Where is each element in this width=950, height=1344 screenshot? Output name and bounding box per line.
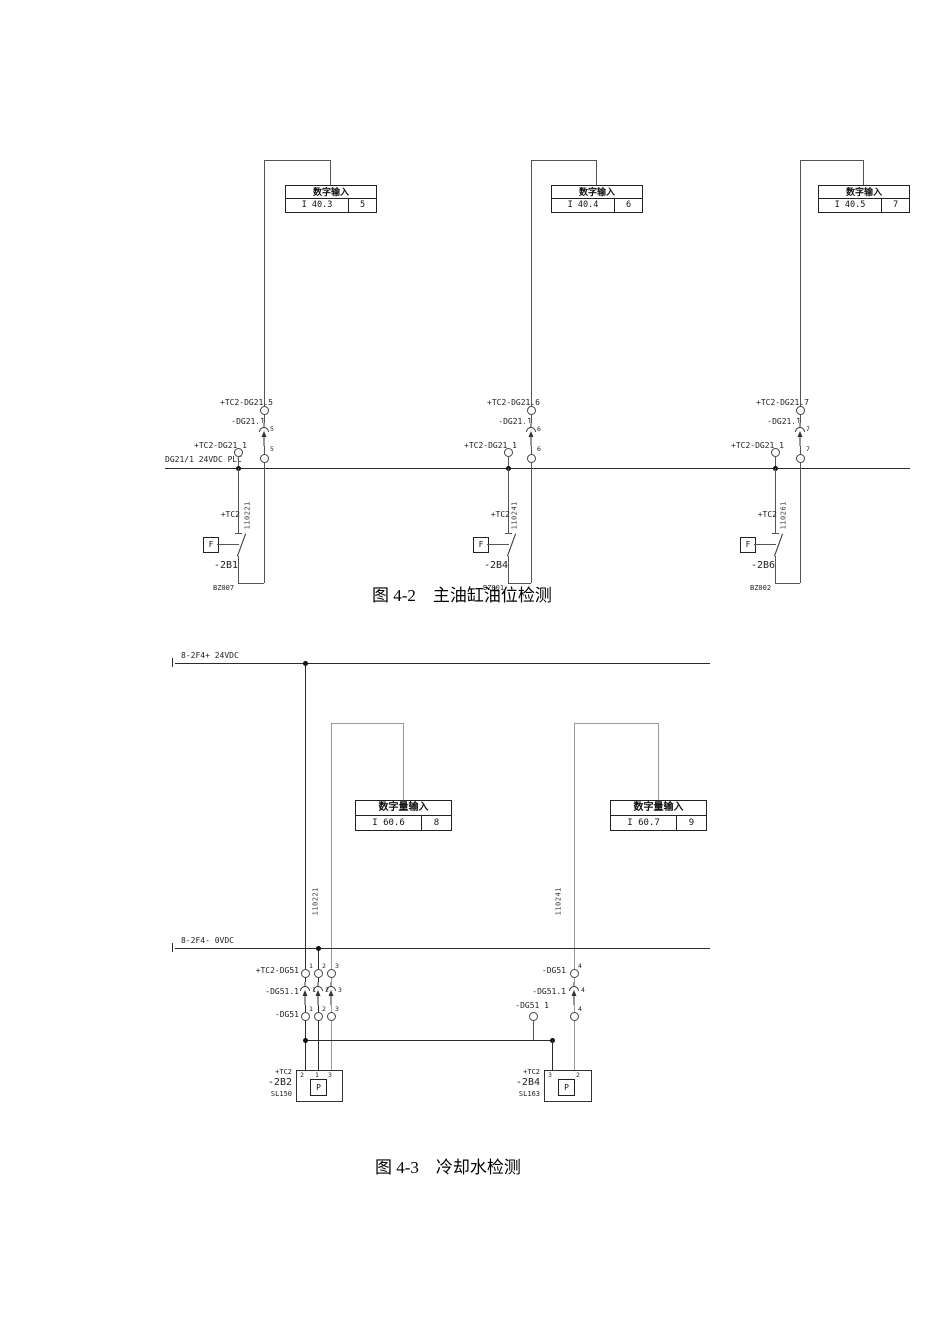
terminal-circle [260, 454, 269, 463]
wire-number-label: 110241 [555, 887, 563, 915]
function-box: P [310, 1079, 327, 1096]
wire [238, 468, 239, 534]
float-switch-contact [237, 534, 246, 557]
plc-input-address: I 60.7 [611, 816, 677, 830]
bus-continuation-tick [172, 943, 173, 952]
device-terminal: 3 [548, 1072, 552, 1079]
function-box: F [473, 537, 489, 553]
bus-0vdc-line [175, 948, 710, 949]
wire [330, 160, 331, 185]
contact-tick [505, 533, 512, 534]
wire [331, 723, 403, 724]
pin-number: 1 [309, 1006, 313, 1013]
pin-number: 2 [325, 987, 329, 994]
pin-number: 5 [270, 446, 274, 453]
pin-number: 3 [338, 987, 342, 994]
terminal-row-label: +TC2-DG51 [256, 966, 299, 975]
terminal-circle [527, 406, 536, 415]
plc-input-title: 数字量输入 [611, 801, 706, 816]
pin-number: 5 [270, 426, 274, 433]
wire [658, 723, 659, 800]
bus-label: 8-2F4+ 24VDC [181, 651, 239, 660]
terminal-circle [570, 1012, 579, 1021]
device-terminal: 3 [328, 1072, 332, 1079]
plc-input-title: 数字输入 [286, 186, 376, 199]
pin-number: 4 [578, 1006, 582, 1013]
plc-input-box: 数字量输入 I 60.6 8 [355, 800, 452, 831]
terminal-circle [570, 969, 579, 978]
pin-number: 4 [581, 987, 585, 994]
pin-number: 4 [578, 963, 582, 970]
device-code-label: SL163 [519, 1090, 540, 1098]
return-wire [318, 948, 319, 1070]
actuator-link [217, 544, 239, 545]
plc-input-address: I 40.4 [552, 199, 615, 212]
bus-continuation-tick [172, 658, 173, 667]
function-box: F [740, 537, 756, 553]
junction-dot [303, 1038, 308, 1043]
plc-input-box: 数字输入 I 40.5 7 [818, 185, 910, 213]
figure-caption: 图 4-3 冷却水检测 [375, 1158, 521, 1178]
pin-number: 1 [312, 987, 316, 994]
supply-wire [305, 663, 306, 1070]
terminal-circle [301, 1012, 310, 1021]
wire [574, 723, 658, 724]
plc-input-title: 数字输入 [819, 186, 909, 199]
bus-label: DG21/1 24VDC PLC [165, 455, 242, 464]
terminal-row-label: -DG51 [542, 966, 566, 975]
wire [238, 556, 239, 583]
plant-label: +TC2 [491, 510, 510, 519]
wire-number-label: 110221 [244, 501, 252, 529]
wire [775, 583, 800, 584]
device-tag-label: -2B2 [268, 1077, 292, 1089]
plc-input-channel: 5 [349, 199, 376, 212]
signal-wire [264, 160, 265, 583]
figure-caption: 图 4-2 主油缸油位检测 [372, 586, 552, 606]
plant-label: +TC2 [758, 510, 777, 519]
wire [264, 160, 330, 161]
function-box: F [203, 537, 219, 553]
wire [531, 160, 596, 161]
device-code-label: SL150 [271, 1090, 292, 1098]
connector-pin-icon [258, 423, 270, 446]
bus-24vdc-line [175, 663, 710, 664]
terminal-circle [327, 969, 336, 978]
wire [596, 160, 597, 185]
device-terminal: 2 [300, 1072, 304, 1079]
pin-number: 6 [537, 426, 541, 433]
wire-number-label: 110241 [511, 501, 519, 529]
device-tag-label: -2B4 [516, 1077, 540, 1089]
pin-number: 7 [806, 446, 810, 453]
lower-row-label: -DG51 [275, 1010, 299, 1019]
plc-input-address: I 60.6 [356, 816, 422, 830]
bus-label: 8-2F4- 0VDC [181, 936, 234, 945]
device-terminal: 2 [576, 1072, 580, 1079]
connector-row-label: -DG51.1 [532, 987, 566, 996]
device-tag-label: -2B1 [214, 560, 238, 572]
wire [800, 160, 863, 161]
link-wire [305, 1040, 552, 1041]
terminal-circle [260, 406, 269, 415]
plc-input-title: 数字量输入 [356, 801, 451, 816]
wire [238, 583, 264, 584]
plc-input-box: 数字输入 I 40.4 6 [551, 185, 643, 213]
wire [508, 468, 509, 534]
plc-input-box: 数字量输入 I 60.7 9 [610, 800, 707, 831]
plant-label: +TC2 [275, 1068, 292, 1076]
contact-tick [772, 533, 779, 534]
connector-pin-icon [299, 982, 311, 1005]
plc-input-channel: 7 [882, 199, 909, 212]
wire-number-label: 110221 [312, 887, 320, 915]
plc-input-address: I 40.3 [286, 199, 349, 212]
terminal-circle [527, 454, 536, 463]
pin-number: 2 [322, 963, 326, 970]
plc-input-title: 数字输入 [552, 186, 642, 199]
pin-number: 7 [806, 426, 810, 433]
connector-pin-icon [794, 423, 806, 446]
plc-input-box: 数字输入 I 40.3 5 [285, 185, 377, 213]
plant-label: +TC2 [523, 1068, 540, 1076]
cable-ref-label: BZ002 [750, 584, 771, 592]
wire [533, 1020, 534, 1040]
pin-number: 6 [537, 446, 541, 453]
wire [552, 1040, 553, 1070]
connector-pin-icon [525, 423, 537, 446]
plc-input-address: I 40.5 [819, 199, 882, 212]
plant-label: +TC2 [221, 510, 240, 519]
terminal-circle [796, 454, 805, 463]
wire [508, 583, 531, 584]
connector-pin-icon [568, 982, 580, 1005]
actuator-link [487, 544, 509, 545]
terminal-circle [314, 969, 323, 978]
link-terminal-label: -DG51 1 [515, 1001, 549, 1010]
float-switch-contact [774, 534, 783, 557]
schematic-page: DG21/1 24VDC PLC 数字输入 I 40.3 5 +TC2-DG21… [0, 0, 950, 1344]
pin-number: 2 [322, 1006, 326, 1013]
bus-24vdc-plc-line [165, 468, 910, 469]
plc-input-channel: 6 [615, 199, 642, 212]
signal-wire [531, 160, 532, 583]
device-terminal: 1 [315, 1072, 319, 1079]
wire [508, 556, 509, 583]
terminal-circle [327, 1012, 336, 1021]
signal-wire [800, 160, 801, 583]
junction-dot [316, 946, 321, 951]
device-tag-label: -2B6 [751, 560, 775, 572]
plc-input-channel: 8 [422, 816, 451, 830]
pin-number: 3 [335, 1006, 339, 1013]
connector-row-label: -DG51.1 [265, 987, 299, 996]
wire [403, 723, 404, 800]
actuator-link [754, 544, 776, 545]
wire-number-label: 110261 [780, 501, 788, 529]
terminal-circle [314, 1012, 323, 1021]
cable-ref-label: BZ007 [213, 584, 234, 592]
function-box: P [558, 1079, 575, 1096]
pin-number: 3 [335, 963, 339, 970]
pin-number: 1 [309, 963, 313, 970]
wire [775, 468, 776, 534]
device-tag-label: -2B4 [484, 560, 508, 572]
plc-input-channel: 9 [677, 816, 706, 830]
terminal-circle [301, 969, 310, 978]
wire [775, 556, 776, 583]
float-switch-contact [507, 534, 516, 557]
contact-tick [235, 533, 242, 534]
wire [863, 160, 864, 185]
terminal-circle [796, 406, 805, 415]
